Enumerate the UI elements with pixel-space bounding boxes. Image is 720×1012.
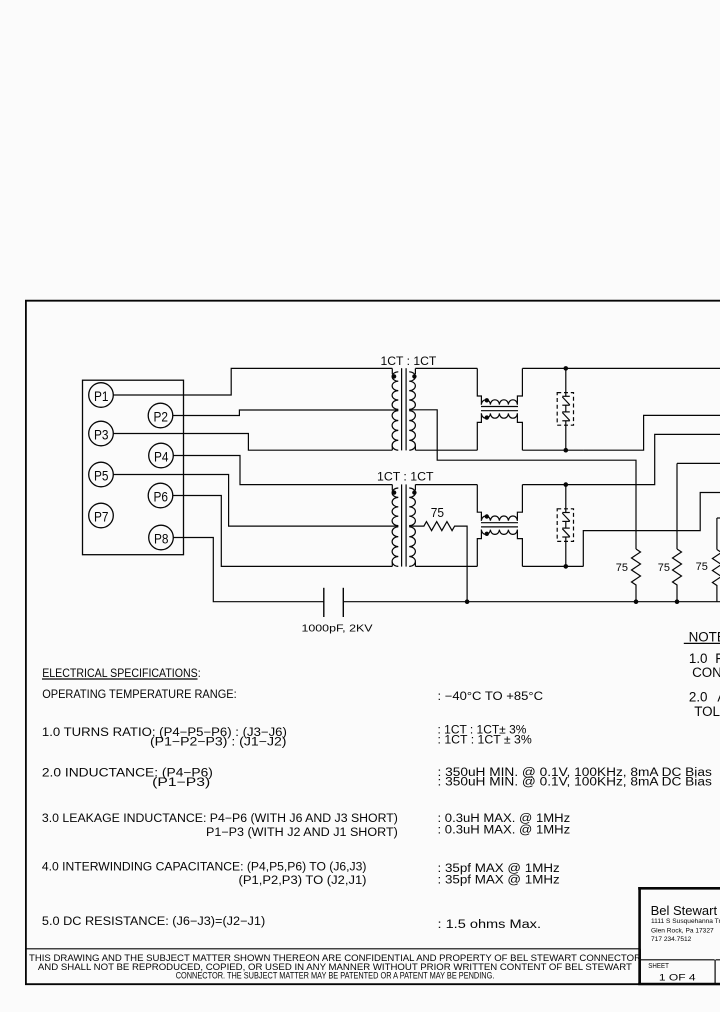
svg-text:: 1CT : 1CT ± 3%: : 1CT : 1CT ± 3% (438, 735, 532, 747)
svg-text:: 0.3uH MAX. @ 1MHz: : 0.3uH MAX. @ 1MHz (438, 813, 571, 825)
svg-text:P4: P4 (154, 448, 169, 464)
svg-text:P1−P3 (WITH J2 AND J1 SHO: P1−P3 (WITH J2 AND J1 SHORT) (206, 827, 398, 839)
svg-text:: 0.3uH MAX. @ 1MHz: : 0.3uH MAX. @ 1MHz (438, 824, 571, 836)
svg-text:SHEET: SHEET (648, 961, 669, 970)
svg-text:3.0 LEAKAGE INDUCTANCE: P4: 3.0 LEAKAGE INDUCTANCE: P4−P6 (WITH J6 A… (42, 813, 398, 825)
svg-text:2.0: 2.0 (689, 690, 708, 705)
svg-text:: 35pf MAX @ 1MHz: : 35pf MAX @ 1MHz (438, 875, 560, 887)
svg-text:OPERATING TEMPERATURE RANGE:: OPERATING TEMPERATURE RANGE: (42, 689, 237, 701)
svg-text:Glen Rock, Pa 17327: Glen Rock, Pa 17327 (651, 927, 714, 934)
svg-text:717 234.7512: 717 234.7512 (651, 936, 692, 943)
svg-text:NOTE: NOTE (689, 630, 720, 645)
svg-text:P7: P7 (94, 508, 109, 524)
svg-text:P8: P8 (154, 530, 169, 546)
svg-text:75: 75 (658, 562, 670, 574)
svg-text:(P1−P2−P3) : (J1−J2): (P1−P2−P3) : (J1−J2) (150, 737, 287, 749)
svg-text:75: 75 (616, 562, 628, 574)
svg-text:CONNE: CONNE (692, 665, 720, 680)
svg-text:: 350uH MIN. @ 0.1V, 100K: : 350uH MIN. @ 0.1V, 100KHz, 8mA DC Bias (438, 776, 713, 788)
svg-text:(P1−P3): (P1−P3) (152, 777, 210, 789)
svg-text:P3: P3 (94, 426, 109, 442)
svg-text:P6: P6 (153, 488, 168, 504)
svg-text:FOR: FOR (715, 651, 720, 666)
svg-text:75: 75 (431, 505, 444, 520)
svg-text:1CT : 1CT: 1CT : 1CT (377, 472, 434, 484)
svg-text:75: 75 (696, 561, 708, 573)
svg-text:TOLE: TOLE (694, 704, 720, 719)
svg-text:1000pF, 2KV: 1000pF, 2KV (302, 624, 373, 635)
svg-text:5.0 DC RESISTANCE: (J6−J3)=: 5.0 DC RESISTANCE: (J6−J3)=(J2−J1) (42, 916, 265, 928)
svg-text:P5: P5 (94, 467, 109, 483)
svg-text:P2: P2 (153, 408, 168, 424)
svg-text:: 1.5 ohms Max.: : 1.5 ohms Max. (438, 919, 542, 931)
svg-text:1 OF 4: 1 OF 4 (659, 972, 696, 982)
svg-text:: 35pf MAX @ 1MHz: : 35pf MAX @ 1MHz (438, 863, 560, 875)
svg-text:1.0: 1.0 (689, 651, 708, 666)
svg-text:CONNECTOR. THE SUBJECT MATTER: CONNECTOR. THE SUBJECT MATTER MAY BE PAT… (176, 971, 495, 981)
svg-text:1CT : 1CT: 1CT : 1CT (381, 356, 437, 368)
svg-text:: −40°C TO +85°C: : −40°C TO +85°C (438, 691, 544, 703)
svg-text:Bel Stewart Connector: Bel Stewart Connector (651, 903, 720, 918)
svg-text:4.0 INTERWINDING CAPACITANCE: 4.0 INTERWINDING CAPACITANCE: (P4,P5,P6)… (42, 862, 367, 874)
svg-text:P1: P1 (94, 388, 109, 404)
svg-text:1111 S Susquehanna Trail: 1111 S Susquehanna Trail (651, 918, 720, 925)
svg-text:(P1,P2,P3) TO (J2,J1): (P1,P2,P3) TO (J2,J1) (239, 875, 367, 887)
svg-text:ELECTRICAL SPECIFICATIONS:: ELECTRICAL SPECIFICATIONS: (42, 668, 201, 680)
